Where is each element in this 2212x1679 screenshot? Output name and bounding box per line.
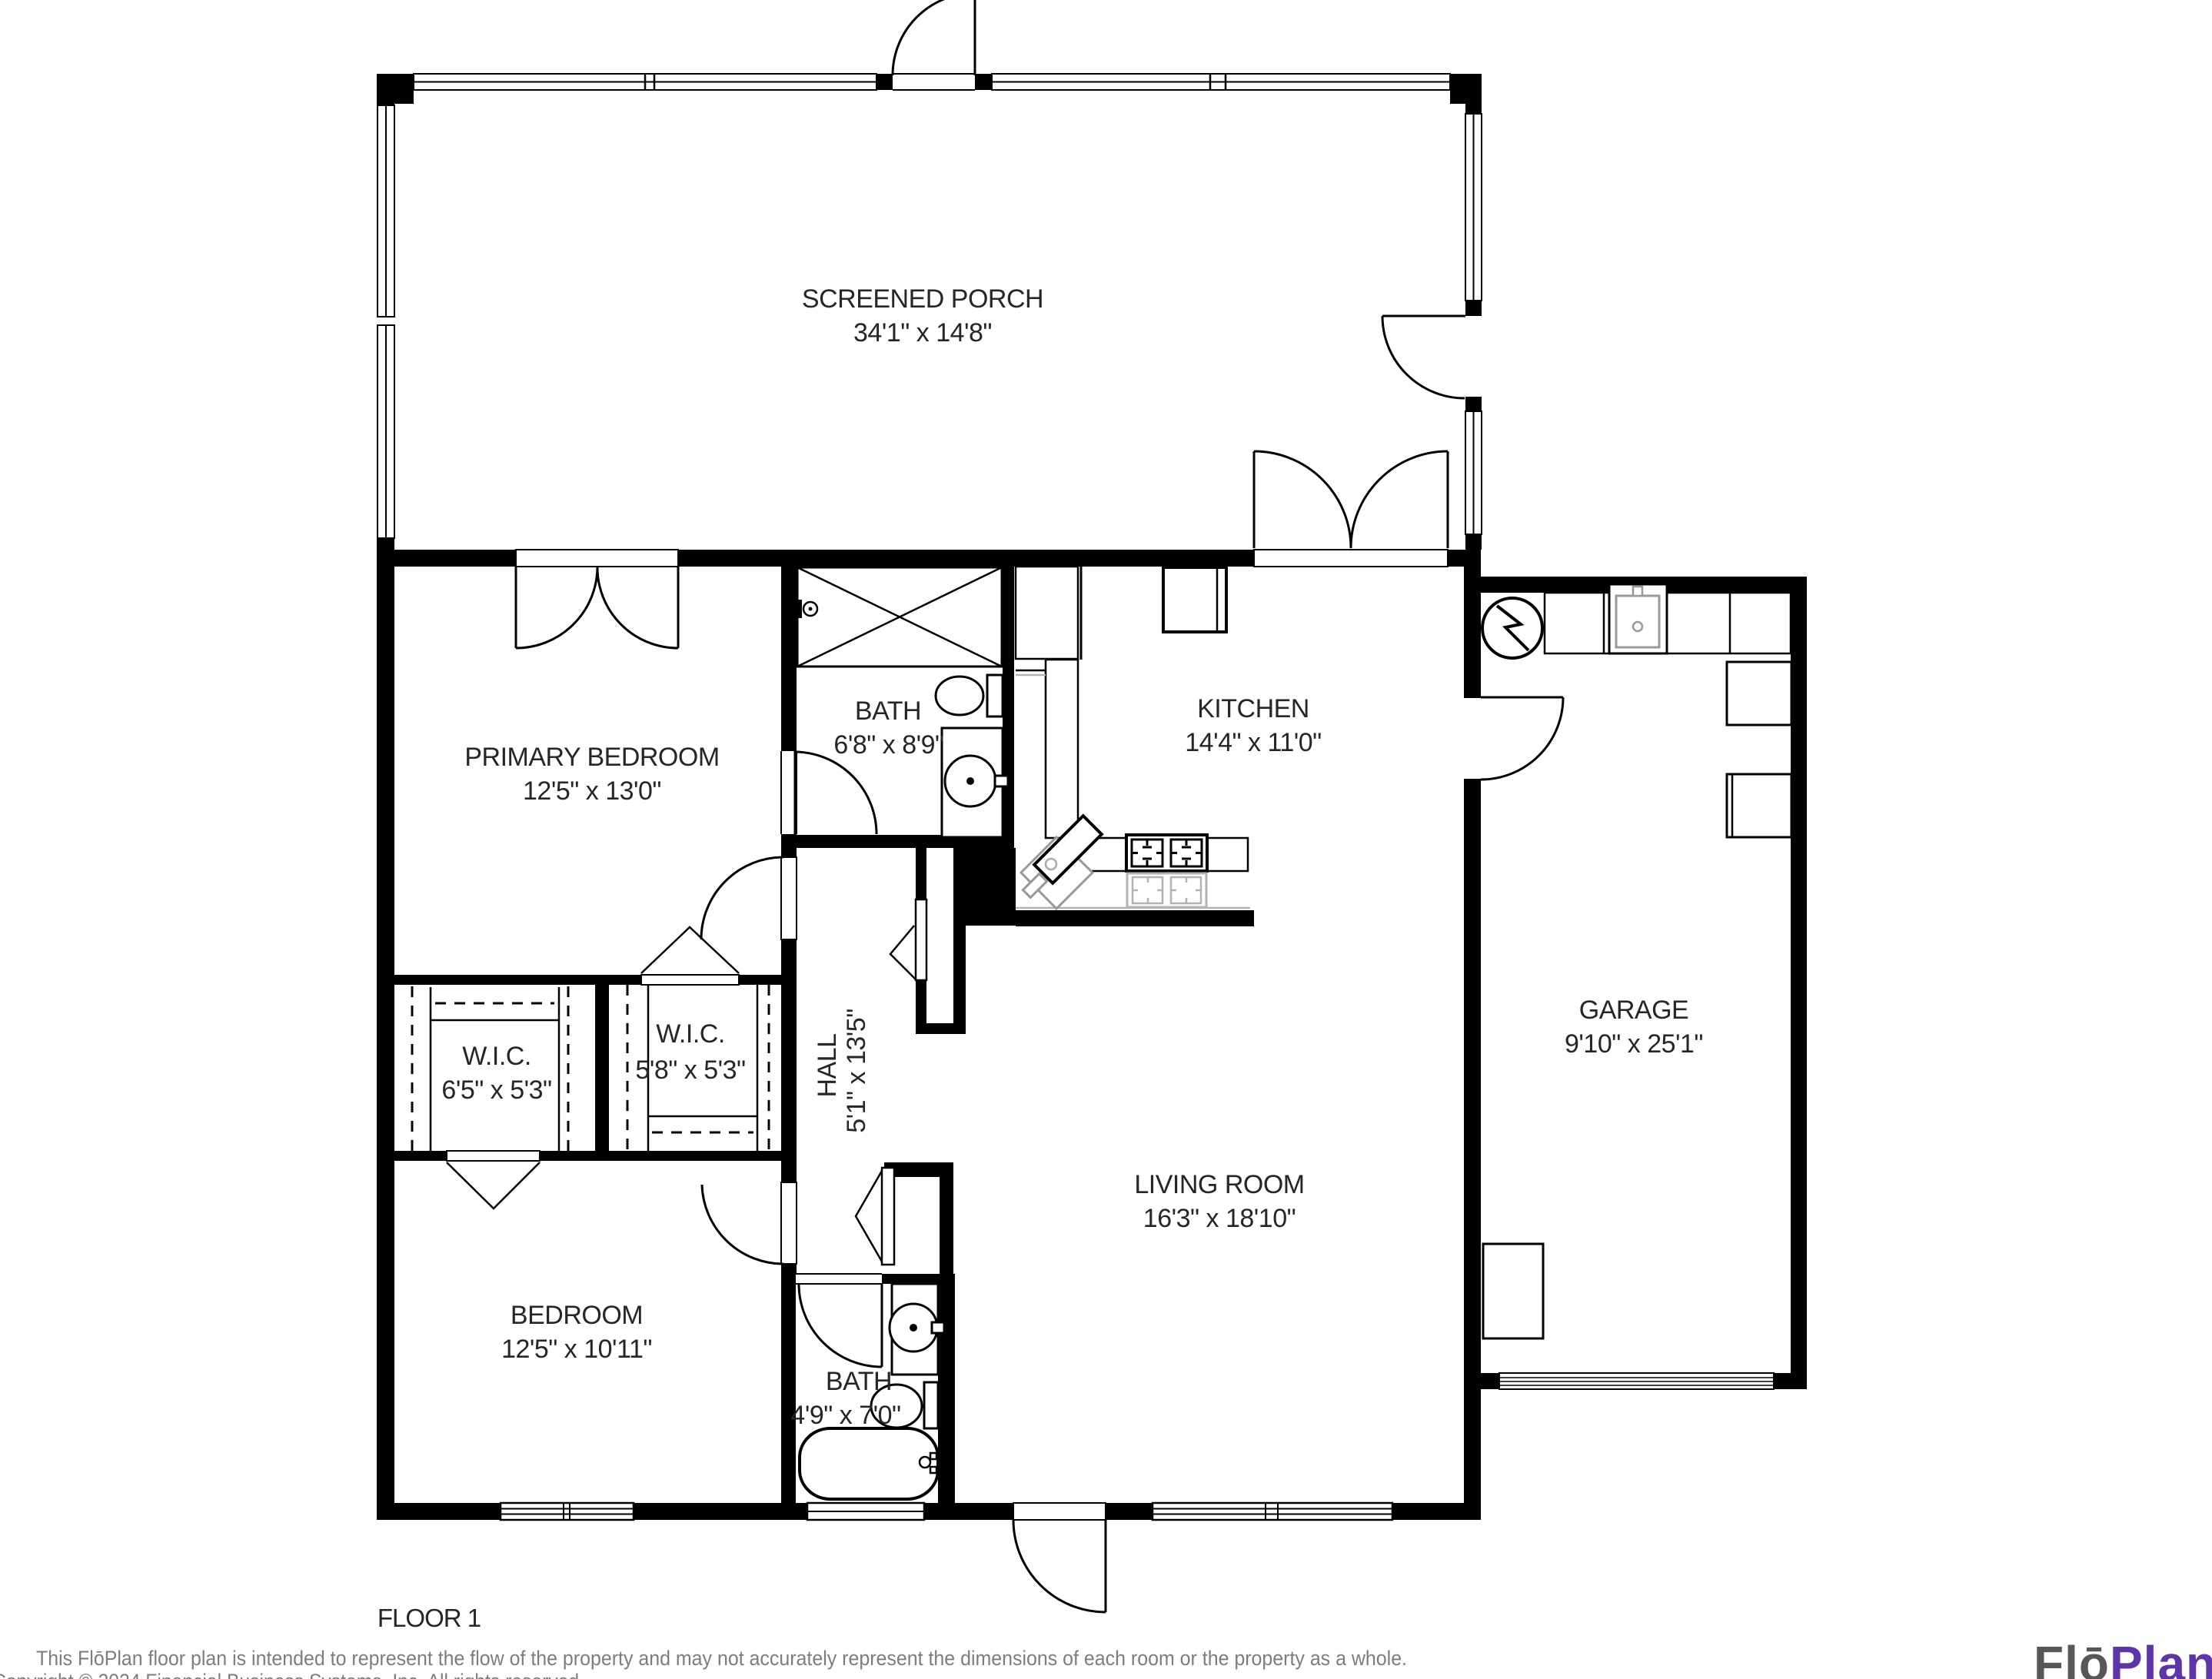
svg-text:6'8" x 8'9": 6'8" x 8'9" [833,730,943,760]
svg-text:BEDROOM: BEDROOM [511,1301,643,1330]
svg-text:9'10" x 25'1": 9'10" x 25'1" [1565,1029,1703,1059]
svg-text:6'5" x 5'3": 6'5" x 5'3" [441,1076,551,1105]
svg-text:4'9" x 7'0": 4'9" x 7'0" [790,1401,900,1430]
svg-text:W.I.C.: W.I.C. [462,1042,531,1071]
svg-text:W.I.C.: W.I.C. [656,1019,725,1049]
svg-text:HALL: HALL [813,1033,842,1097]
svg-text:LIVING ROOM: LIVING ROOM [1134,1170,1304,1199]
svg-text:This FlōPlan floor plan is int: This FlōPlan floor plan is intended to r… [36,1647,1407,1670]
svg-text:BATH: BATH [855,697,921,726]
svg-text:14'4" x 11'0": 14'4" x 11'0" [1185,728,1321,757]
svg-text:5'8" x 5'3": 5'8" x 5'3" [635,1056,745,1085]
svg-text:34'1" x 14'8": 34'1" x 14'8" [853,318,992,347]
svg-text:12'5" x 13'0": 12'5" x 13'0" [523,776,661,806]
svg-text:GARAGE: GARAGE [1579,996,1688,1025]
svg-text:FLOOR 1: FLOOR 1 [378,1604,481,1632]
svg-text:FlōPlan: FlōPlan [2034,1636,2212,1679]
svg-text:KITCHEN: KITCHEN [1197,694,1309,723]
svg-text:16'3" x 18'10": 16'3" x 18'10" [1143,1204,1296,1233]
svg-text:SCREENED PORCH: SCREENED PORCH [802,284,1043,314]
svg-text:PRIMARY BEDROOM: PRIMARY BEDROOM [464,743,719,772]
svg-text:5'1" x 13'5": 5'1" x 13'5" [842,1009,871,1133]
svg-text:12'5" x 10'11": 12'5" x 10'11" [501,1335,652,1364]
svg-text:BATH: BATH [826,1367,892,1396]
svg-text:Copyright © 2024 Financial Bus: Copyright © 2024 Financial Business Syst… [0,1670,584,1679]
